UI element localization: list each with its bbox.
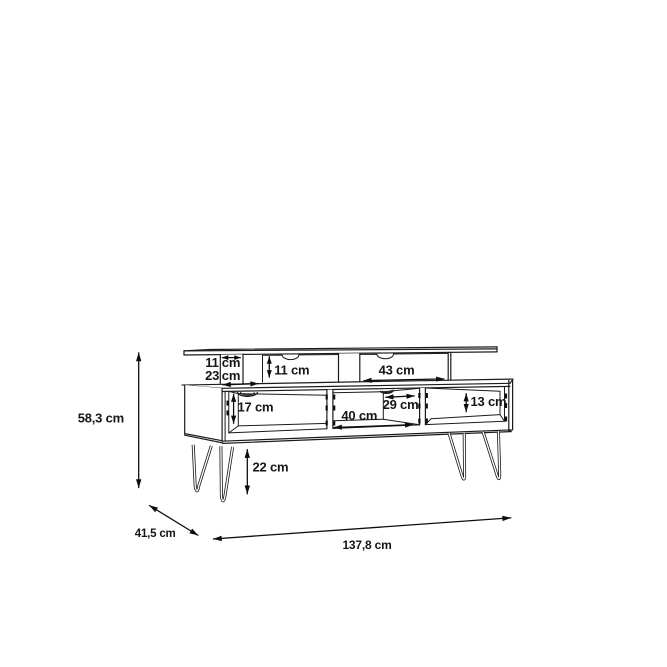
svg-text:137,8 cm: 137,8 cm xyxy=(342,538,391,552)
svg-text:29 cm: 29 cm xyxy=(383,397,419,412)
svg-text:cm: cm xyxy=(222,368,240,383)
svg-text:22 cm: 22 cm xyxy=(253,460,289,475)
svg-text:13 cm: 13 cm xyxy=(471,394,507,409)
svg-text:41,5 cm: 41,5 cm xyxy=(135,528,176,540)
svg-text:58,3 cm: 58,3 cm xyxy=(78,411,124,426)
svg-text:17 cm: 17 cm xyxy=(238,400,274,415)
svg-text:43 cm: 43 cm xyxy=(379,362,415,377)
svg-text:23: 23 xyxy=(205,368,219,383)
svg-text:40 cm: 40 cm xyxy=(341,408,377,423)
svg-text:11 cm: 11 cm xyxy=(274,362,309,377)
